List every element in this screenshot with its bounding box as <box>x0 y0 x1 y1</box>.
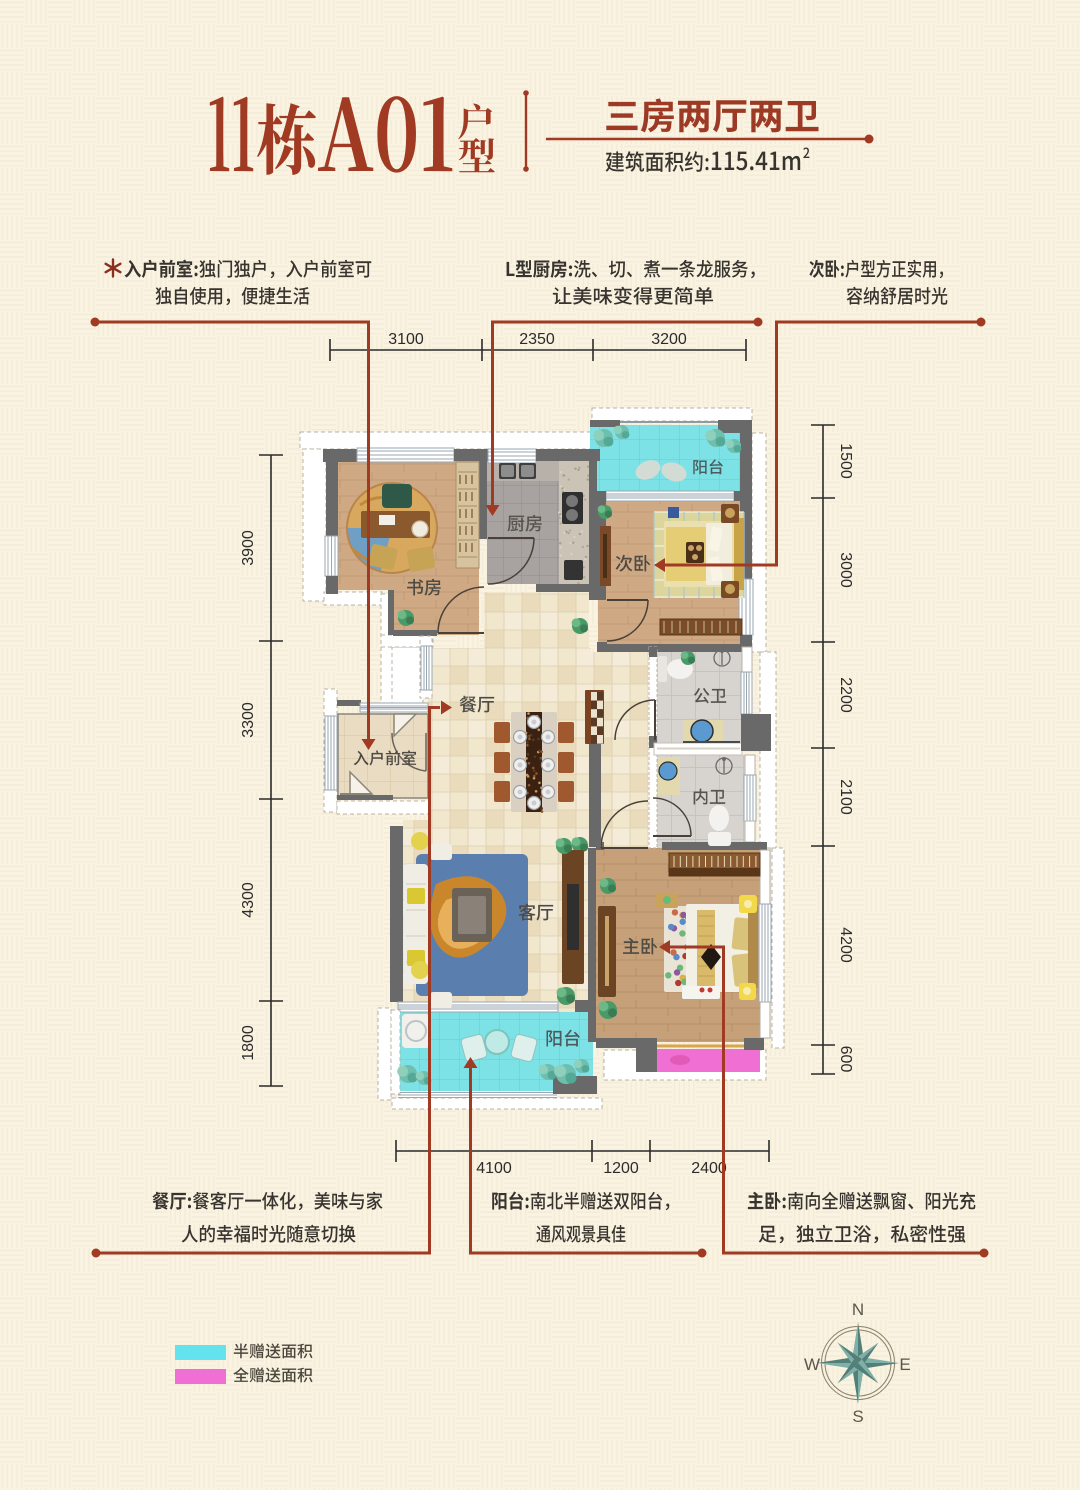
svg-text:4300: 4300 <box>240 882 257 918</box>
svg-text:2350: 2350 <box>519 331 555 348</box>
svg-text:600: 600 <box>837 1046 854 1073</box>
svg-text:3300: 3300 <box>240 702 257 738</box>
svg-text:2100: 2100 <box>837 779 854 815</box>
svg-text:1500: 1500 <box>837 443 854 479</box>
svg-text:4100: 4100 <box>476 1160 512 1177</box>
svg-text:1200: 1200 <box>603 1160 639 1177</box>
svg-text:W: W <box>804 1355 820 1374</box>
svg-text:4200: 4200 <box>837 927 854 963</box>
svg-text:E: E <box>899 1355 910 1374</box>
svg-text:3100: 3100 <box>388 331 424 348</box>
svg-text:N: N <box>852 1300 864 1319</box>
svg-text:1800: 1800 <box>240 1025 257 1061</box>
svg-text:2400: 2400 <box>691 1160 727 1177</box>
svg-text:3200: 3200 <box>651 331 687 348</box>
svg-text:3000: 3000 <box>837 552 854 588</box>
svg-text:2200: 2200 <box>837 677 854 713</box>
svg-text:3900: 3900 <box>240 530 257 566</box>
svg-text:S: S <box>852 1407 863 1426</box>
